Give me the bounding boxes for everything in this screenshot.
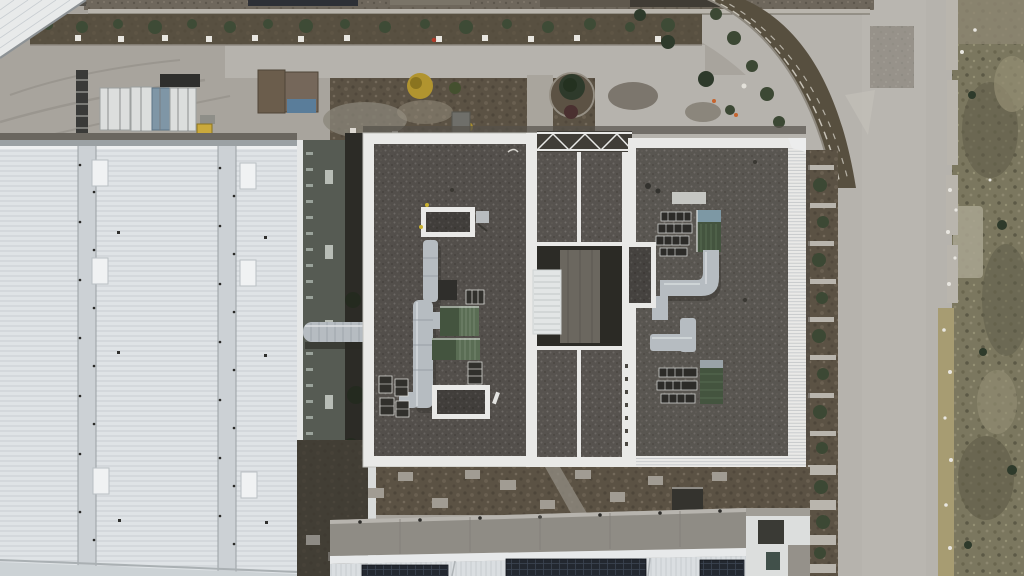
clip — [233, 195, 236, 198]
vent — [306, 400, 313, 403]
tree — [661, 18, 675, 32]
garden-bed-texture — [30, 14, 702, 45]
tree — [113, 19, 123, 29]
shrub — [968, 91, 976, 99]
planter-wall — [810, 431, 836, 436]
paver-pad — [118, 36, 124, 42]
unit-cap — [697, 210, 721, 222]
paver-pad — [574, 35, 580, 41]
clip — [79, 337, 82, 340]
paver-pad — [350, 128, 356, 133]
rack — [657, 381, 697, 390]
debris — [948, 188, 952, 192]
skylight — [240, 163, 256, 189]
vent — [306, 416, 313, 419]
shrub — [979, 348, 987, 356]
end-structure-opening — [758, 520, 784, 544]
dark-equipment — [160, 74, 200, 87]
vent — [306, 432, 313, 435]
end-structure-panel — [766, 552, 780, 570]
yellow-dot — [419, 225, 423, 229]
planter-wall — [810, 203, 836, 208]
tree — [76, 21, 88, 33]
conifer — [634, 9, 646, 21]
orange-marker — [712, 99, 716, 103]
solar-array — [362, 565, 448, 576]
vent — [306, 296, 313, 299]
vent — [306, 280, 313, 283]
vent — [306, 248, 313, 251]
paver-pad — [436, 36, 442, 42]
planter-wall — [808, 393, 834, 398]
tree — [224, 21, 236, 33]
green-bush — [449, 82, 461, 94]
rack — [468, 362, 482, 384]
dirt-patch — [685, 102, 721, 122]
pad — [500, 480, 516, 490]
grass-dark-patch — [958, 436, 1014, 520]
conifer — [812, 329, 826, 343]
debris — [949, 458, 953, 462]
tree — [502, 19, 512, 29]
island-tree-center — [563, 78, 577, 92]
shrub — [727, 31, 741, 45]
paver-pad — [75, 35, 81, 41]
conifer — [814, 547, 826, 559]
tree — [340, 19, 350, 29]
dark-speck — [753, 160, 757, 164]
shrub — [1007, 465, 1017, 475]
pad — [432, 498, 448, 508]
wall-segment — [947, 80, 958, 165]
paver-pad — [528, 36, 534, 42]
drain — [658, 511, 662, 515]
vent — [306, 216, 313, 219]
gravel-strip — [537, 350, 577, 457]
paver-pad — [655, 36, 661, 42]
clip — [219, 167, 222, 170]
conifer — [812, 253, 826, 267]
eave-white-line — [0, 146, 297, 149]
rack — [380, 398, 394, 415]
green-air-handler-3 — [697, 210, 721, 252]
window — [325, 395, 333, 409]
clip — [233, 253, 236, 256]
clip — [219, 515, 222, 518]
drain — [598, 513, 602, 517]
clip — [233, 311, 236, 314]
right-roadside — [938, 0, 1024, 576]
vent-dot — [265, 521, 268, 524]
planter-wall — [808, 317, 834, 322]
container — [131, 87, 152, 131]
rack — [658, 224, 692, 233]
debris — [960, 50, 964, 54]
rack — [659, 368, 697, 377]
pad — [712, 472, 727, 481]
wall-segment — [946, 175, 958, 235]
tree — [625, 22, 635, 32]
duct-run-a — [423, 240, 438, 302]
pad — [368, 488, 384, 498]
vent-dot — [117, 351, 120, 354]
conifer — [661, 35, 675, 49]
tree — [459, 20, 473, 34]
paver-pad — [482, 35, 488, 41]
skylight — [241, 472, 257, 498]
skylight-duct-stub — [476, 211, 489, 223]
shrub — [760, 87, 774, 101]
right-landscape-strip — [806, 150, 838, 576]
solar-array — [700, 560, 744, 576]
paver-pad — [252, 35, 258, 41]
rack — [395, 379, 408, 396]
clip — [79, 511, 82, 514]
debris — [948, 546, 952, 550]
duct-equipment-box — [438, 280, 457, 300]
window — [325, 170, 333, 184]
rubble-patch — [390, 0, 470, 5]
alley-shrub — [345, 292, 361, 308]
planter-box — [808, 465, 836, 475]
rack — [661, 394, 695, 403]
clip — [79, 395, 82, 398]
red-bush — [564, 105, 578, 119]
roadside-gravel-patch — [870, 26, 914, 88]
pad — [610, 492, 625, 502]
end-structure-edge — [746, 508, 810, 516]
clip — [233, 543, 236, 546]
debris — [947, 282, 951, 286]
container-blue — [152, 88, 170, 130]
clip — [79, 279, 82, 282]
debris — [942, 328, 946, 332]
solar-array — [506, 559, 646, 576]
tree — [542, 21, 554, 33]
skylight — [92, 258, 108, 284]
vent — [306, 352, 313, 355]
debris — [946, 230, 950, 234]
conifer — [813, 405, 827, 419]
tan-curb-strip — [938, 308, 954, 576]
tree — [299, 19, 313, 33]
dirt-patch — [608, 82, 658, 110]
planter-box — [808, 535, 836, 545]
vent-dot — [117, 231, 120, 234]
tree — [584, 18, 596, 30]
neighbor-solar-roof — [248, 0, 358, 6]
conifer — [813, 178, 827, 192]
bush — [725, 105, 735, 115]
rack — [379, 376, 392, 393]
debris — [954, 208, 957, 211]
seam-band — [218, 146, 236, 576]
pad — [648, 476, 663, 485]
rack — [656, 236, 689, 245]
conifer — [816, 442, 828, 454]
clip — [219, 225, 222, 228]
vent-dot — [264, 236, 267, 239]
drain — [418, 518, 422, 522]
gravel-strip — [581, 350, 622, 457]
conifer — [817, 216, 829, 228]
main-building — [363, 126, 806, 468]
warehouse-top-eave — [0, 140, 297, 146]
red-object — [432, 38, 436, 42]
debris — [973, 28, 977, 32]
conifer — [816, 515, 830, 529]
wall-segment — [946, 0, 958, 70]
vent-dot — [264, 354, 267, 357]
green-air-handler-1 — [440, 306, 479, 336]
duct-horizontal — [650, 334, 694, 351]
white-warehouse — [0, 133, 297, 576]
pad — [575, 470, 591, 479]
grass-light-patch — [977, 370, 1017, 434]
rack — [466, 290, 484, 304]
paver-pad — [344, 35, 350, 41]
tree — [148, 20, 162, 34]
vent — [306, 200, 313, 203]
paver-pad — [162, 35, 168, 41]
conifer — [698, 71, 714, 87]
clip — [79, 221, 82, 224]
vent — [306, 152, 313, 155]
clip — [233, 369, 236, 372]
vent — [306, 232, 313, 235]
planter-wall — [810, 279, 836, 284]
yellow-dot — [425, 203, 429, 207]
debris — [944, 503, 948, 507]
clip — [219, 283, 222, 286]
clip — [233, 485, 236, 488]
clip — [93, 191, 96, 194]
tree — [187, 19, 197, 29]
end-structure-apron — [788, 545, 810, 576]
skylight-well-shade — [629, 247, 651, 303]
skylight-well-shade — [437, 390, 485, 414]
drain — [478, 516, 482, 520]
debris — [948, 370, 952, 374]
rubble-patch — [540, 0, 640, 7]
concrete-blotch — [397, 100, 453, 124]
vent — [306, 168, 313, 171]
gravel-strip — [537, 152, 577, 242]
right-wing — [624, 138, 806, 468]
white-dot — [742, 84, 747, 89]
clip — [219, 399, 222, 402]
conifer — [814, 480, 828, 494]
unit-cap — [700, 360, 723, 368]
blue-tarp — [287, 99, 316, 113]
tree — [379, 21, 391, 33]
clip — [93, 249, 96, 252]
planter-wall — [808, 241, 834, 246]
vent — [306, 384, 313, 387]
drain — [358, 520, 362, 524]
autumn-tree-shade — [410, 77, 422, 89]
skylight — [240, 260, 256, 286]
clip — [93, 365, 96, 368]
planter-box — [810, 564, 836, 573]
clip — [93, 539, 96, 542]
right-eave-ribs — [788, 148, 806, 456]
debris — [943, 416, 946, 419]
pad — [465, 470, 480, 479]
gray-box — [200, 115, 215, 124]
drain — [718, 509, 722, 513]
skylight — [92, 160, 108, 186]
bottom-eave-ribs — [636, 456, 806, 468]
warehouse-roof-ribs — [0, 140, 297, 576]
planter-wall — [808, 165, 834, 170]
aerial-photo — [0, 0, 1024, 576]
vent — [306, 368, 313, 371]
planter-wall — [810, 355, 836, 360]
window — [325, 245, 333, 259]
courtyard-shadow — [600, 250, 622, 343]
green-air-handler-4 — [700, 360, 723, 404]
dark-speck — [450, 188, 454, 192]
center-section — [526, 131, 632, 467]
building-side-shadow — [806, 150, 810, 460]
gravel-strip — [581, 152, 622, 242]
clip — [93, 307, 96, 310]
debris — [989, 179, 992, 182]
paver-pad — [298, 36, 304, 42]
dark-speck — [656, 189, 661, 194]
clip — [79, 164, 82, 167]
alley-shrub — [347, 386, 365, 404]
strip-soil — [806, 150, 838, 576]
aerial-photo-canvas — [0, 0, 1024, 576]
debris — [953, 256, 956, 259]
clip — [93, 423, 96, 426]
clip — [233, 427, 236, 430]
container — [170, 88, 196, 131]
panel-seam-2 — [218, 146, 236, 576]
dark-speck — [743, 298, 747, 302]
light-panel — [672, 192, 706, 204]
dark-rooftop-strip — [630, 0, 720, 7]
rack — [660, 248, 687, 256]
eave-shadow — [0, 133, 297, 140]
conifer — [816, 292, 828, 304]
wall-segment — [947, 245, 958, 303]
bottom-area — [330, 467, 810, 576]
roof-truss-canopy — [537, 131, 632, 152]
ladder-tower — [76, 70, 88, 133]
vent-dot — [118, 519, 121, 522]
dark-speck — [645, 183, 651, 189]
orange-marker — [734, 113, 738, 117]
shrub — [997, 220, 1007, 230]
left-wing — [363, 133, 537, 467]
green-air-handler-2 — [432, 338, 480, 360]
tree — [263, 19, 273, 29]
skylight-well-shade — [426, 212, 470, 232]
brown-container — [258, 70, 285, 113]
shrub — [746, 60, 758, 72]
shrub — [964, 541, 972, 549]
top-dirt-corner — [952, 0, 1024, 44]
pad — [540, 500, 555, 509]
vent — [306, 264, 313, 267]
skylight — [93, 468, 109, 494]
end-structure — [746, 508, 810, 576]
clip — [79, 453, 82, 456]
planter-box — [810, 500, 836, 510]
conifer — [817, 368, 829, 380]
clip — [219, 341, 222, 344]
vent — [306, 184, 313, 187]
pad — [398, 472, 413, 481]
container — [100, 88, 130, 130]
louver-panel — [533, 270, 561, 334]
shrub — [710, 8, 722, 20]
courtyard-equipment — [306, 535, 320, 545]
paver-pad — [206, 36, 212, 42]
clip — [219, 457, 222, 460]
tree — [420, 19, 430, 29]
